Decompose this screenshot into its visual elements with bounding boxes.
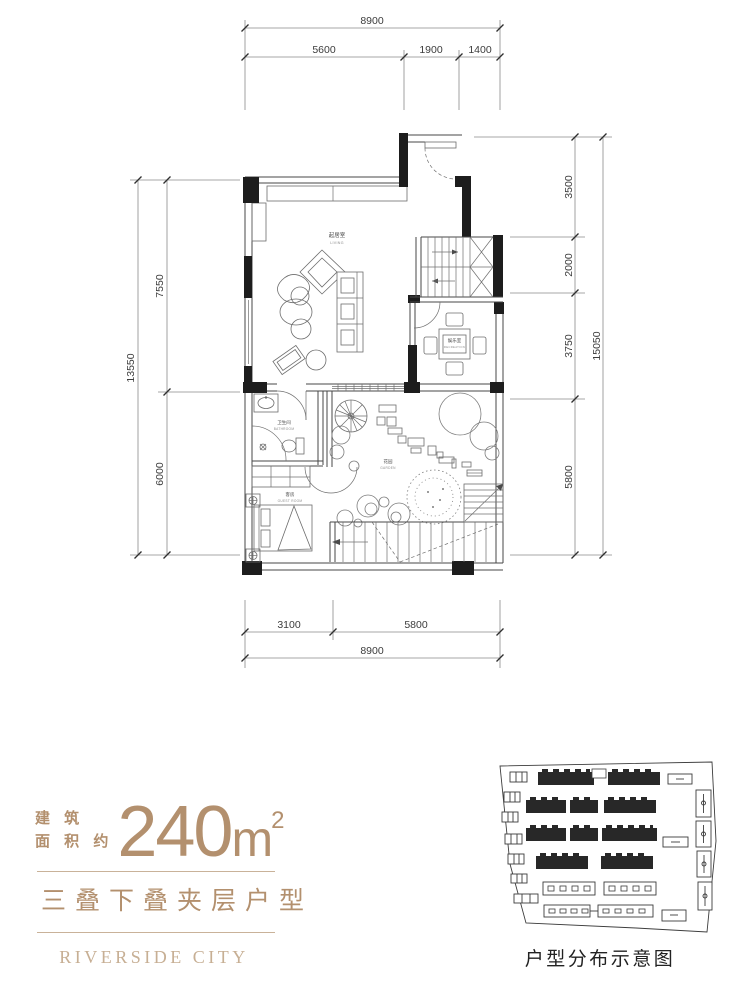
staircase-upper [410, 237, 503, 302]
ottoman [306, 350, 326, 370]
info-block: 建 筑 面 积 约 240m2 三叠下叠夹层户型 RIVERSIDE CITY [35, 799, 285, 968]
floor-plan: 8900 5600 1900 1400 13550 7550 6000 3500… [0, 0, 740, 700]
toilet [296, 438, 304, 454]
dim-right-seg1: 3500 [563, 175, 575, 199]
dimension-top: 8900 5600 1900 1400 [242, 15, 504, 110]
divider [37, 932, 275, 933]
recreation-label-zh: 娱乐室 [448, 337, 462, 344]
living-furniture [273, 250, 363, 375]
garden-label-zh: 花园 [384, 458, 393, 465]
living-label-en: LIVING [330, 241, 344, 245]
bench [273, 345, 305, 374]
staircase-lower [330, 484, 503, 562]
spiral-staircase [335, 400, 367, 432]
area-label-line1: 建 筑 [35, 808, 113, 831]
dimension-left: 13550 7550 6000 [125, 177, 240, 559]
dim-right-seg3: 3750 [563, 334, 575, 358]
brand-logo: RIVERSIDE CITY [35, 947, 273, 968]
dim-top-seg2: 1900 [419, 44, 443, 56]
dimension-bottom: 3100 5800 8900 [242, 600, 504, 668]
bathroom: 卫生间 BATHROOM [252, 391, 306, 461]
site-buildings-dark [526, 769, 660, 869]
recreation-label-en: RECREATION [444, 345, 465, 349]
dim-bottom-seg2: 5800 [404, 619, 428, 631]
dim-bottom-seg1: 3100 [277, 619, 301, 631]
dim-left-total: 13550 [125, 353, 137, 382]
shower [252, 426, 286, 461]
recreation-table [439, 329, 470, 359]
guest-label-en: GUEST ROOM [278, 499, 303, 503]
area-label-line2: 面 积 约 [35, 831, 113, 854]
garden-label-en: GARDEN [380, 466, 396, 470]
bathroom-label-en: BATHROOM [274, 427, 295, 431]
site-plan: 户型分布示意图 [486, 744, 730, 976]
garden: 花园 GARDEN [330, 393, 499, 527]
dim-right-seg4: 5800 [563, 465, 575, 489]
bathroom-label-zh: 卫生间 [277, 419, 291, 426]
dim-top-total: 8900 [360, 15, 384, 27]
large-tree [439, 393, 481, 435]
site-buildings-right [662, 774, 712, 921]
dim-bottom-total: 8900 [360, 645, 384, 657]
guest-label-zh: 客房 [286, 491, 295, 498]
area-label: 建 筑 面 积 约 [35, 808, 113, 865]
site-plan-caption: 户型分布示意图 [525, 948, 676, 970]
dim-top-seg3: 1400 [468, 44, 492, 56]
dim-right-seg2: 2000 [563, 253, 575, 277]
dim-left-seg2: 6000 [154, 462, 166, 486]
unit-type-title: 三叠下叠夹层户型 [35, 872, 285, 926]
area-unit: m [231, 811, 271, 867]
dimension-right: 3500 2000 3750 5800 15050 [474, 134, 612, 559]
recreation-room: 娱乐室 RECREATION [414, 302, 486, 375]
site-buildings-outline [543, 882, 656, 917]
wardrobe [252, 466, 310, 487]
dim-right-total: 15050 [591, 331, 603, 360]
living-label-zh: 起居室 [329, 231, 346, 239]
dim-left-seg1: 7550 [154, 274, 166, 298]
guest-room: 客房 GUEST ROOM [246, 466, 357, 562]
floor-plan-page: 8900 5600 1900 1400 13550 7550 6000 3500… [0, 0, 740, 989]
area-value: 240m2 [117, 799, 282, 865]
dim-top-seg1: 5600 [312, 44, 336, 56]
area-superscript: 2 [271, 807, 282, 834]
living-room-label: 起居室 LIVING [329, 231, 346, 245]
area-line: 建 筑 面 积 约 240m2 [35, 799, 285, 865]
